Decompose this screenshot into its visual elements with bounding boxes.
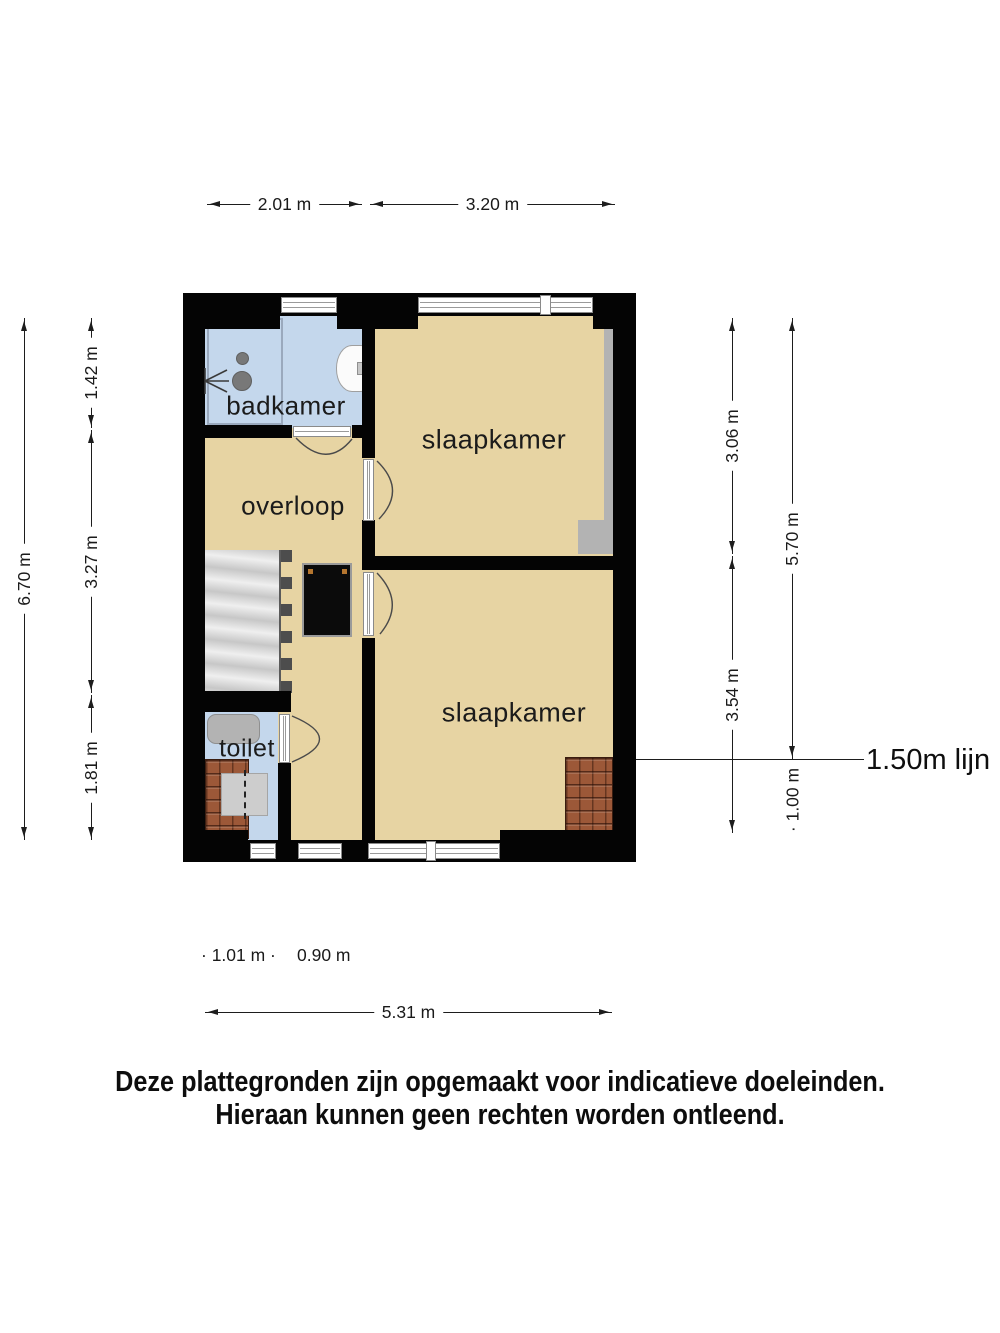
- door-badkamer: [293, 426, 351, 437]
- dim-top-right: 3.20 m: [370, 204, 615, 205]
- window-mullion: [426, 841, 436, 861]
- dim-label: 5.31 m: [374, 1002, 444, 1022]
- window-badkamer: [281, 297, 337, 313]
- wall-between-bedrooms: [362, 556, 613, 570]
- wall-block-bm1: [278, 840, 296, 862]
- dim-left-toilet: 1.81 m: [91, 695, 92, 840]
- disclaimer: Deze plattegronden zijn opgemaakt voor i…: [65, 1066, 935, 1132]
- wall-corner-br: [500, 830, 636, 862]
- dim-label: 3.54 m: [722, 660, 742, 730]
- void-peg: [342, 569, 347, 574]
- line-150cm: [636, 759, 864, 760]
- dim-bottom: 5.31 m: [205, 1012, 612, 1013]
- room-label-slaapkamer-top: slaapkamer: [422, 425, 567, 456]
- window-hall: [298, 843, 342, 859]
- chimney-block: [578, 520, 613, 554]
- dim-label: 3.27 m: [81, 527, 101, 597]
- disclaimer-line1: Deze plattegronden zijn opgemaakt voor i…: [65, 1066, 935, 1099]
- wall-mid-c: [362, 638, 375, 840]
- wall-block-bm2: [342, 840, 368, 862]
- dim-label: 1.42 m: [81, 338, 101, 408]
- wall-left: [183, 293, 205, 862]
- shower-drain-large: [232, 371, 252, 391]
- dim-label: 5.70 m: [782, 504, 802, 574]
- stair-post: [281, 604, 292, 616]
- shower-drain-small: [236, 352, 249, 365]
- wall-corner-tl: [183, 293, 280, 329]
- floorplan: badkamer overloop toilet slaapkamer slaa…: [0, 0, 1000, 1333]
- wall-right: [613, 293, 636, 862]
- wall-mid-b: [362, 520, 375, 556]
- room-label-toilet: toilet: [219, 735, 275, 764]
- door-slaapkamer-bottom: [363, 572, 374, 636]
- wall-badkamer-south-a: [205, 425, 292, 438]
- dim-bottom-small-left: · 1.01 m ·: [201, 945, 276, 966]
- dim-label: 3.06 m: [722, 401, 742, 471]
- dim-left-overloop: 3.27 m: [91, 430, 92, 693]
- room-label-overloop: overloop: [241, 491, 345, 522]
- stair-post: [281, 658, 292, 670]
- dim-label: 3.20 m: [458, 194, 528, 214]
- room-label-badkamer: badkamer: [226, 391, 346, 422]
- stairs: [205, 550, 281, 693]
- dim-left-outer: 6.70 m: [24, 318, 25, 840]
- window-mullion: [540, 295, 551, 315]
- window-toilet: [250, 843, 276, 859]
- wall-corner-tm: [337, 293, 418, 329]
- chimney-strip: [604, 316, 613, 554]
- dim-label: 6.70 m: [14, 544, 34, 614]
- dim-right-slaapkamer-bottom: 3.54 m: [732, 556, 733, 833]
- line-150cm-label: 1.50m lijn: [866, 744, 990, 777]
- window-slaapkamer-top: [418, 297, 593, 313]
- dim-label: 2.01 m: [250, 194, 320, 214]
- dim-top-left: 2.01 m: [207, 204, 362, 205]
- dim-left-badkamer: 1.42 m: [91, 318, 92, 428]
- door-toilet: [279, 714, 290, 763]
- roof-tiles-slaapkamer: [565, 757, 613, 840]
- wall-mid-a: [362, 316, 375, 458]
- wall-corner-tr: [593, 293, 636, 329]
- dim-label: 1.81 m: [81, 733, 101, 803]
- dim-right-slaapkamer-top: 3.06 m: [732, 318, 733, 554]
- dim-right-100: · 1.00 m: [783, 768, 804, 832]
- room-label-slaapkamer-bottom: slaapkamer: [442, 698, 587, 729]
- stair-post: [281, 631, 292, 643]
- wall-corner-bl: [183, 830, 248, 862]
- dim-bottom-small-right: 0.90 m: [297, 945, 351, 966]
- skylight-dashed-line: [244, 770, 246, 819]
- void-peg: [308, 569, 313, 574]
- wall-toilet-east: [278, 763, 291, 840]
- disclaimer-line2: Hieraan kunnen geen rechten worden ontle…: [65, 1099, 935, 1132]
- wall-toilet-north: [183, 691, 291, 712]
- dim-right-570: 5.70 m: [792, 318, 793, 759]
- stair-post: [281, 577, 292, 589]
- stair-post: [281, 550, 292, 562]
- door-slaapkamer-top: [363, 459, 374, 521]
- stairwell-void: [302, 563, 352, 637]
